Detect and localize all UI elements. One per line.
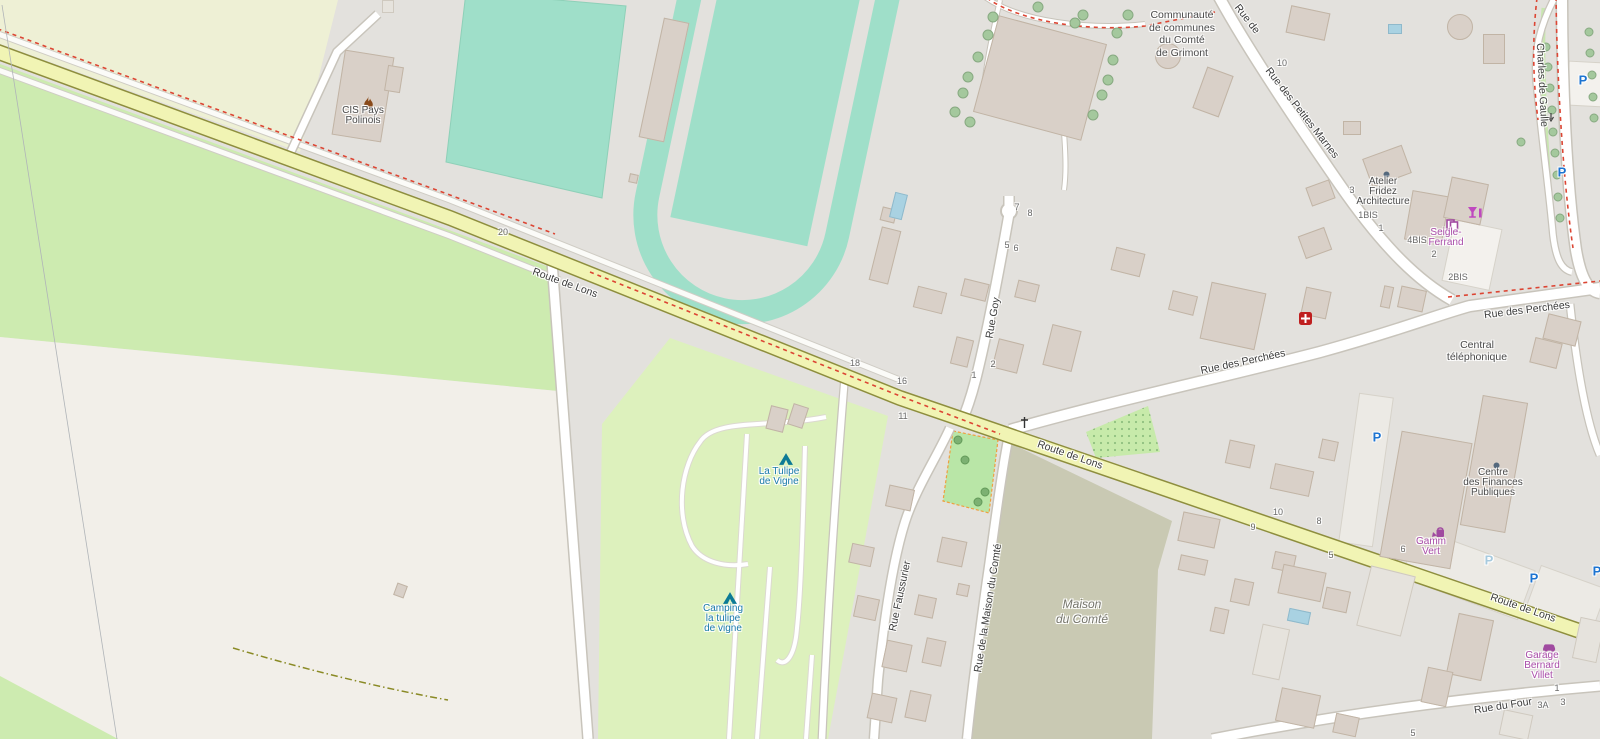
house-number: 4BIS [1407,235,1427,245]
street-label-rue-du-four: Rue du Four [1473,696,1533,717]
poi-label-seigle-ferrand: Seigle-Ferrand [1428,228,1463,248]
house-number: 9 [1250,522,1255,532]
house-number: 1BIS [1358,210,1378,220]
house-number: 18 [850,358,860,368]
poi-label-la-tulipe-de-vigne: La Tulipede Vigne [759,467,800,487]
labels-layer: Route de LonsRoute de LonsRoute de LonsR… [0,0,1600,739]
street-label-rue-de: Rue de [1232,2,1262,36]
parking-icon: P [1593,564,1600,579]
house-number: 1 [971,370,976,380]
house-number: 5 [1004,240,1009,250]
house-number: 1 [1378,223,1383,233]
street-label-rue-goy: Rue Goy [983,297,1002,340]
openstreetmap-canvas[interactable]: Route de LonsRoute de LonsRoute de LonsR… [0,0,1600,739]
street-label-route-de-lons: Route de Lons [531,266,599,301]
parking-icon: P [1485,553,1494,568]
poi-label-garage-bernard-villet: GarageBernardVillet [1524,651,1560,681]
house-number: 5 [1328,550,1333,560]
house-number: 6 [1013,243,1018,253]
parking-icon: P [1373,430,1382,445]
poi-label-central-t-l-phonique: Centraltéléphonique [1447,339,1507,363]
poi-label-cis-pays-polinois: CIS PaysPolinois [342,106,384,126]
house-number: 11 [898,411,907,421]
street-label-rue-faussurier: Rue Faussurier [887,560,914,633]
street-label-route-de-lons: Route de Lons [1036,438,1104,472]
poi-label-communaut-de-communes-du-comt-de-grimont: Communautéde communesdu Comtéde Grimont [1149,9,1215,59]
house-number: 10 [1273,507,1283,517]
parking-icon: P [1558,165,1567,180]
house-number: 2 [990,359,995,369]
street-label-rue-des-perch-es: Rue des Perchées [1200,347,1287,377]
poi-label-maison-du-comt: Maisondu Comté [1056,597,1108,627]
house-number: 8 [1027,208,1032,218]
parking-icon: P [1530,571,1539,586]
street-label-rue-des-perch-es: Rue des Perchées [1483,299,1570,321]
street-label-rue-de-la-maison-du-comt: Rue de la Maison du Comté [972,543,1004,673]
street-label-route-de-lons: Route de Lons [1489,591,1557,625]
house-number: 8 [1316,516,1321,526]
poi-label-atelier-fridez-architecture: AtelierFridezArchitecture [1356,177,1409,207]
poi-label-centre-des-finances-publiques: Centredes FinancesPubliques [1463,468,1522,498]
house-number: 20 [498,227,508,237]
street-label-rue-des-petites-marnes: Rue des Petites Marnes [1263,65,1341,161]
house-number: 16 [897,376,907,386]
house-number: 6 [1400,544,1405,554]
house-number: 1 [1554,683,1559,693]
house-number: 7 [1014,202,1019,212]
house-number: 3A [1537,700,1548,710]
house-number: 10 [1277,58,1287,68]
house-number: 3 [1349,185,1354,195]
house-number: 2 [1431,249,1436,259]
parking-icon: P [1579,73,1588,88]
house-number: 2BIS [1448,272,1468,282]
street-label-charles-de-gaulle: Charles de Gaulle [1534,43,1550,128]
poi-label-camping-la-tulipe-de-vigne: Campingla tulipede vigne [703,604,743,634]
poi-label-gamm-vert: GammVert [1416,537,1446,557]
house-number: 3 [1560,697,1565,707]
house-number: 5 [1410,728,1415,738]
